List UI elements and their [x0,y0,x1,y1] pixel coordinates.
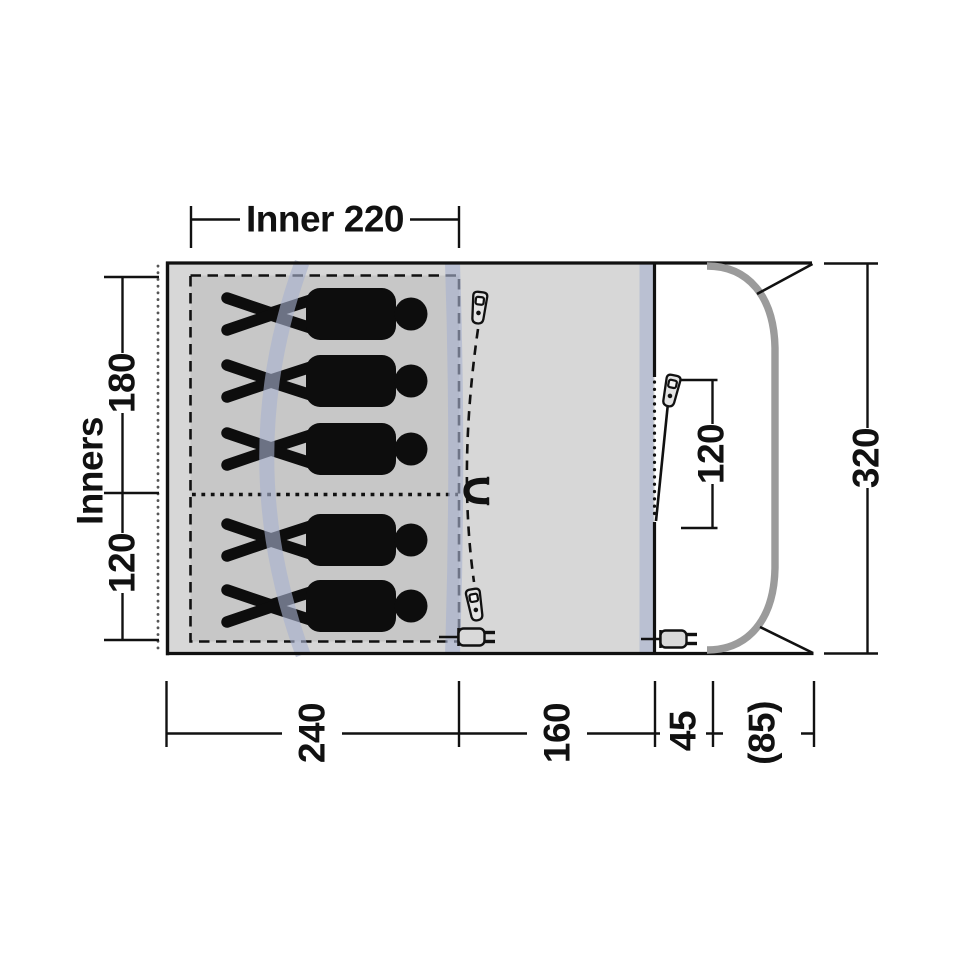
inner-width-label: Inner 220 [246,199,404,240]
top-guy-line [757,264,813,294]
tent-floorplan-diagram: Inner 220 180 120 Inners 320 120 240 160… [0,0,960,960]
inners-axis-label: Inners [70,417,111,525]
porch-length-label: 160 [537,703,578,763]
zipper-pull-icon [661,374,681,408]
front-door-zip-line [656,403,668,521]
rear-depth-label: 180 [102,353,143,413]
inner-length-label: 240 [292,703,333,763]
bottom-dimension-ticks [167,681,815,747]
door-height-label: 120 [691,424,732,484]
middle-pole-sleeve [453,263,456,655]
tent-floorplan-page: Inner 220 180 120 Inners 320 120 240 160… [0,0,960,960]
awning-length-label: (85) [742,701,783,765]
front-depth-label: 120 [102,533,143,593]
bottom-guy-line [760,627,813,653]
total-depth-label: 320 [846,428,887,488]
front-length-label: 45 [663,711,704,751]
